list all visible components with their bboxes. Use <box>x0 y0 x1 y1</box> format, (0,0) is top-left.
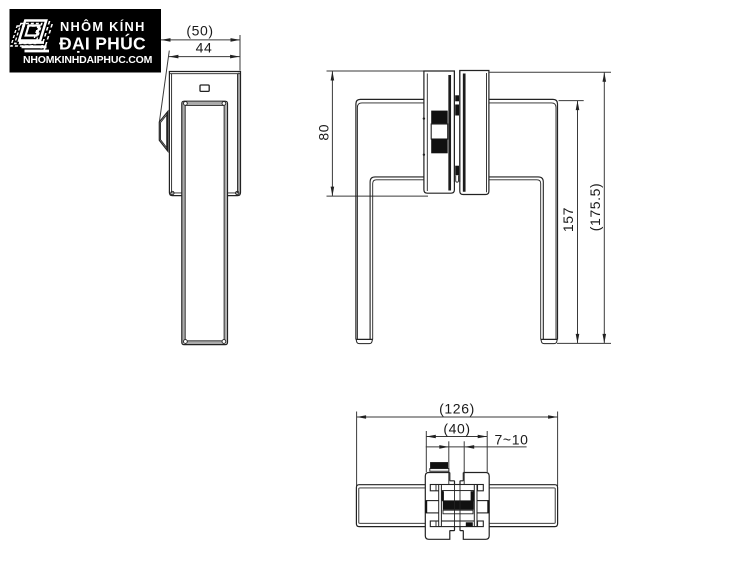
svg-text:(175.5): (175.5) <box>587 183 603 232</box>
svg-text:80: 80 <box>316 124 332 141</box>
svg-text:157: 157 <box>560 207 576 232</box>
svg-text:ĐẠI PHÚC: ĐẠI PHÚC <box>59 33 146 54</box>
svg-text:44: 44 <box>196 40 213 56</box>
svg-text:(126): (126) <box>439 400 475 416</box>
svg-text:(50): (50) <box>186 23 213 39</box>
svg-text:(40): (40) <box>443 421 470 437</box>
svg-text:7~10: 7~10 <box>495 432 529 448</box>
svg-text:NHÔM KÍNH: NHÔM KÍNH <box>60 19 146 34</box>
svg-text:NHOMKINHDAIPHUC.COM: NHOMKINHDAIPHUC.COM <box>23 54 153 66</box>
